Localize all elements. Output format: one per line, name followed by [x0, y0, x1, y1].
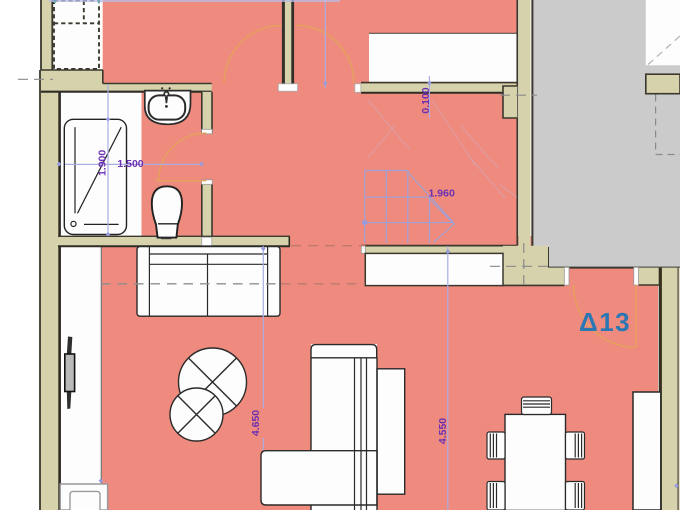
svg-text:Δ13: Δ13: [579, 307, 631, 337]
svg-text:1.900: 1.900: [96, 150, 108, 176]
svg-text:4.550: 4.550: [437, 418, 449, 444]
svg-text:1.960: 1.960: [429, 188, 455, 200]
svg-text:0.100: 0.100: [420, 87, 432, 113]
svg-text:4.650: 4.650: [250, 410, 262, 436]
svg-text:1.500: 1.500: [117, 158, 143, 170]
